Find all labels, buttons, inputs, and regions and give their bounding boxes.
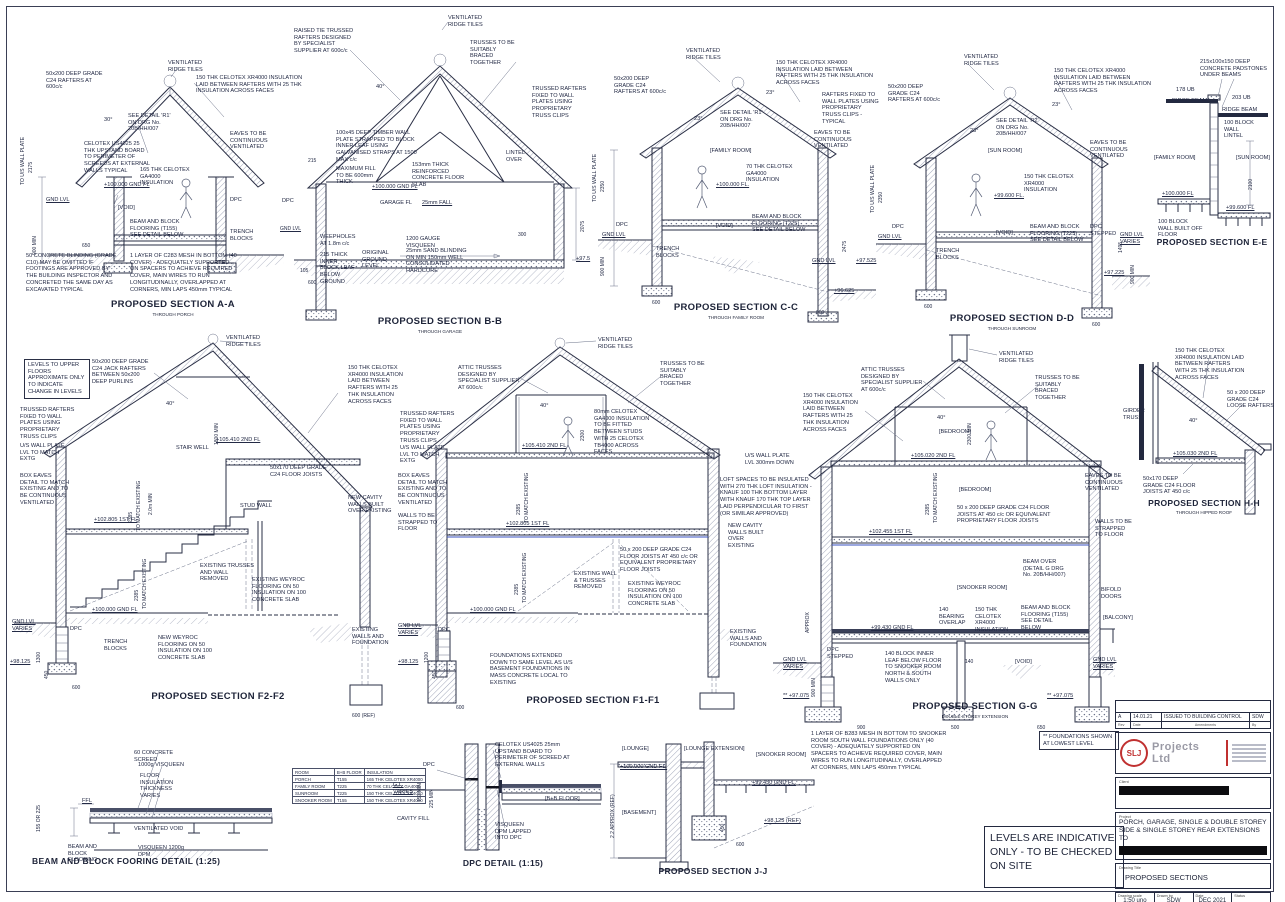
annotation-label: +99.600 FL xyxy=(1226,205,1254,212)
annotation-label: 2100 xyxy=(1248,179,1254,190)
amendments-header: Amendments xyxy=(1162,722,1250,728)
annotation-label: 100 BLOCK WALL xyxy=(1224,120,1264,133)
annotation-label: +100.000 GND FL xyxy=(92,607,138,614)
annotation-label: 70 THK CELOTEX GA4000 INSULATION xyxy=(746,164,800,184)
annotation-label: VENTILATED RIDGE TILES xyxy=(168,60,220,73)
annotation-label: 450 xyxy=(432,671,438,679)
table-cell: FAMILY ROOM xyxy=(293,783,335,790)
annotation-label: DPC xyxy=(70,626,82,633)
annotation-label: TRUSSED RAFTERS FIXED TO WALL PLATES USI… xyxy=(532,86,588,120)
annotation-label: +105.410 2ND FL xyxy=(522,443,566,450)
annotation-label: 600 xyxy=(72,685,80,691)
revision-header-row: Rev Date Amendments By xyxy=(1115,722,1271,729)
annotation-label: WALLS TO BE STRAPPED TO FLOOR xyxy=(398,513,440,533)
annotation-label: FOUNDATIONS EXTENDED DOWN TO SAME LEVEL … xyxy=(490,653,574,687)
annotation-label: 23° xyxy=(694,116,702,123)
annotation-label: ATTIC TRUSSES DESIGNED BY SPECIALIST SUP… xyxy=(861,367,925,394)
annotation-label: 600 xyxy=(652,300,660,306)
detail-beam-block: BEAM AND BLOCK FOORING DETAIL (1:25) 60 … xyxy=(28,738,300,878)
annotation-label: 225 MIN xyxy=(429,789,435,808)
annotation-label: 600 xyxy=(1092,322,1100,328)
annotation-label: TO MATCH EXISTING xyxy=(522,553,528,603)
annotation-label: EXISTING WALLS AND FOUNDATION xyxy=(352,627,394,647)
annotation-label: TRUSSES TO BE SUITABLY BRACED TOGETHER xyxy=(660,361,708,388)
annotation-label: 23° xyxy=(970,128,978,135)
table-row: SNOOKER ROOMT155150 THK CELOTEX XR4000 xyxy=(293,797,426,804)
annotation-label: DPC STEPPED xyxy=(1090,224,1118,237)
annotation-label: 25mm SAND BLINDING ON MIN 150mm WELL CON… xyxy=(406,248,474,275)
annotation-label: EXISTING TRUSSES AND WALL REMOVED xyxy=(200,563,258,583)
annotation-label: DPC xyxy=(230,197,242,204)
revision-amendment: ISSUED TO BUILDING CONTROL xyxy=(1162,713,1250,721)
annotation-label: 50 x 200 DEEP GRADE C24 LOOSE RAFTERS xyxy=(1227,390,1279,410)
annotation-label: GND LVL xyxy=(602,232,626,239)
annotation-label: LINTEL OVER xyxy=(506,150,532,163)
annotation-label: 30° xyxy=(104,117,112,124)
annotation-label: 215 THICK INNER BLOCK LEAF BELOW GROUND xyxy=(320,252,356,286)
annotation-label: +100.000 GND FL xyxy=(372,184,418,191)
table-cell: PORCH xyxy=(293,776,335,783)
annotation-label: [SUN ROOM] xyxy=(988,148,1022,155)
annotation-label: 650 xyxy=(82,243,90,249)
annotation-label: 50x200 DEEP GRADE C24 RAFTERS AT 600c/c xyxy=(46,71,108,91)
annotation-label: SEE DETAIL 'R2' ON DRG No. 20B/HH/007 xyxy=(996,118,1042,138)
annotation-label: 900 MIN xyxy=(600,257,606,276)
detail-dpc: DPC DETAIL (1:15) CELOTEX US4025 25mm UP… xyxy=(393,728,611,880)
section-j-j: PROPOSED SECTION J-J [LOUNGE][LOUNGE EXT… xyxy=(608,718,820,890)
annotation-label: 2385 xyxy=(516,504,522,515)
annotation-label: 600 xyxy=(924,304,932,310)
annotation-label: GIRDER TRUSS xyxy=(1123,408,1151,421)
table-header: INSULATION xyxy=(364,769,425,776)
annotation-label: [SNOOKER ROOM] xyxy=(756,752,806,759)
annotation-label: +96.625 xyxy=(834,288,854,295)
annotation-label: 40° xyxy=(937,415,945,422)
annotation-label: 2175 xyxy=(28,162,34,173)
company-address xyxy=(1232,744,1266,762)
annotation-label: [LOUNGE] xyxy=(622,746,649,753)
annotation-label: G.L. VARIES xyxy=(393,782,415,795)
annotation-label: [B+B FLOOR] xyxy=(545,796,580,803)
annotation-label: +98.125 xyxy=(398,659,418,666)
annotation-label: FFL xyxy=(82,798,92,805)
annotation-label: NEW CAVITY WALLS BUILT OVER EXISTING xyxy=(348,495,392,515)
annotation-label: +102.805 1ST FL xyxy=(94,517,137,524)
annotation-label: VISQUEEN 1200g DPM xyxy=(138,845,196,858)
client-redacted xyxy=(1119,786,1229,795)
annotation-label: 900 MIN xyxy=(811,678,817,697)
annotation-label: 40° xyxy=(540,403,548,410)
annotation-label: GND LVL xyxy=(46,197,70,204)
annotation-label: [SNOOKER ROOM] xyxy=(957,585,1007,592)
annotation-label: 600 xyxy=(456,705,464,711)
annotation-label: [BASEMENT] xyxy=(622,810,656,817)
annotation-label: 40° xyxy=(376,84,384,91)
annotation-label: SEE DETAIL 'R1' ON DRG No. 20B/HH/007 xyxy=(720,110,766,130)
annotation-label: DPC xyxy=(423,762,435,769)
annotation-label: ATTIC TRUSSES DESIGNED BY SPECIALIST SUP… xyxy=(458,365,520,392)
annotation-label: EAVES TO BE CONTINUOUS VENTILATED xyxy=(1090,140,1136,160)
annotation-label: [VOID] xyxy=(996,230,1013,237)
annotation-label: FLOOR INSULATION THICKNESS VARIES xyxy=(140,773,190,800)
annotation-label: 150 THK CELOTEX XR4000 INSULATION LAID B… xyxy=(776,60,880,87)
section-c-c: PROPOSED SECTION C-C THROUGH FAMILY ROOM… xyxy=(590,42,882,324)
annotation-label: ** +97.075 xyxy=(783,693,809,700)
annotation-label: +100.000 FL. xyxy=(716,182,749,189)
annotation-label: 2075 xyxy=(580,221,586,232)
logo-name: Projects Ltd xyxy=(1152,741,1222,765)
annotation-label: 150 THK CELOTEX XR4000 INSULATION xyxy=(975,607,1017,634)
annotation-label: 2475 xyxy=(842,241,848,252)
annotation-label: EAVES TO BE CONTINUOUS VENTILATED xyxy=(1085,473,1127,493)
annotation-label: +100.000 GND FL xyxy=(470,607,516,614)
annotation-label: 215x100x150 DEEP CONCRETE PADSTONES UNDE… xyxy=(1200,59,1274,79)
annotation-label: 2385 xyxy=(514,584,520,595)
annotation-label: 150 THK CELOTEX XR4000 INSULATION LAID B… xyxy=(196,75,308,95)
annotation-label: 1200 xyxy=(424,652,430,663)
annotation-label: DPC STEPPED xyxy=(827,647,853,660)
annotation-label: GND LVL VARIES xyxy=(1093,657,1119,670)
annotation-label: 155 OR 225 xyxy=(36,805,42,832)
annotation-label: 900 MIN xyxy=(1130,265,1136,284)
annotation-label: 50x200 DEEP GRADE C24 RAFTERS AT 600c/c xyxy=(888,84,944,104)
annotation-label: 1495 xyxy=(1118,242,1124,253)
project-address-redacted xyxy=(1119,846,1267,855)
detail-title: DPC DETAIL (1:15) xyxy=(423,858,583,868)
logo-circle-icon: SLJ xyxy=(1120,739,1148,767)
annotation-label: 500 xyxy=(951,725,959,731)
annotation-label: RAFTERS FIXED TO WALL PLATES USING PROPR… xyxy=(822,92,880,126)
annotation-label: EXISTING WEYROC FLOORING ON 50 INSULATIO… xyxy=(252,577,322,604)
annotation-label: 1 LAYER OF C283 MESH IN BOTTOM (40 COVER… xyxy=(130,253,238,293)
table-header: B+B FLOOR xyxy=(334,769,364,776)
annotation-label: TRENCH BLOCKS xyxy=(936,248,966,261)
annotation-label: BEAM AND BLOCK FLOORING (T225) SEE DETAI… xyxy=(1030,224,1086,244)
annotation-label: ** +97.075 xyxy=(1047,693,1073,700)
annotation-label: RAISED TIE TRUSSED RAFTERS DESIGNED BY S… xyxy=(294,28,356,55)
project-box: Project PORCH, GARAGE, SINGLE & DOUBLE S… xyxy=(1115,812,1271,860)
annotation-label: GARAGE FL xyxy=(380,200,412,207)
annotation-label: U/S WALL PLATE LVL 300mm DOWN xyxy=(745,453,795,466)
by-header: By xyxy=(1250,722,1270,728)
drawing-sheet: PROPOSED SECTION A-A THROUGH PORCH VENTI… xyxy=(0,0,1285,902)
annotation-label: GND LVL VARIES xyxy=(12,619,38,632)
annotation-label: GND LVL xyxy=(878,234,902,241)
annotation-label: 50 x 200 DEEP GRADE C24 FLOOR JOISTS AT … xyxy=(620,547,702,574)
date-header: Date xyxy=(1131,722,1162,728)
annotation-label: +100.000 GND FL. xyxy=(620,764,667,771)
revision-empty-row xyxy=(1115,700,1271,713)
annotation-label: 50x200 DEEP GRADE C24 RAFTERS AT 600c/c xyxy=(614,76,670,96)
annotation-label: DPC xyxy=(616,222,628,229)
annotation-label: 50 x 200 DEEP GRADE C24 FLOOR JOISTS AT … xyxy=(957,505,1065,525)
annotation-label: BIFOLD DOORS xyxy=(1101,587,1133,600)
annotation-label: +99.430 GND FL. xyxy=(752,780,796,787)
section-title: PROPOSED SECTION F1-F1 xyxy=(493,695,693,706)
annotation-label: LOFT SPACES TO BE INSULATED WITH 270 THK… xyxy=(720,477,814,517)
annotation-label: TO MATCH EXISTING xyxy=(142,559,148,609)
annotation-label: BOX EAVES DETAIL TO MATCH EXISTING AND T… xyxy=(398,473,450,507)
annotation-label: GND LVL xyxy=(280,226,301,232)
annotation-label: +97.225 xyxy=(1104,270,1124,277)
annotation-label: +97.5 xyxy=(576,256,590,263)
annotation-label: 600 (REF) xyxy=(352,713,375,719)
annotation-label: APPROX xyxy=(805,612,811,633)
annotation-label: DPC xyxy=(438,627,450,634)
annotation-label: 25mm FALL xyxy=(422,200,452,207)
annotation-label: TO U/S WALL PLATE xyxy=(870,165,876,213)
annotation-label: 50x200 DEEP GRADE C24 JACK RAFTERS BETWE… xyxy=(92,359,154,386)
annotation-label: 50x170 DEEP GRADE C24 FLOOR JOISTS xyxy=(270,465,328,478)
date-value: DEC 2021 xyxy=(1196,898,1230,902)
annotation-label: +102.805 1ST FL xyxy=(506,521,549,528)
annotation-label: +100.000 FL xyxy=(1162,191,1194,198)
annotation-label: VENTILATED RIDGE TILES xyxy=(999,351,1051,364)
annotation-label: 2385 xyxy=(925,504,931,515)
annotation-label: STUD WALL xyxy=(240,503,272,510)
annotation-label: VENTILATED RIDGE TILES xyxy=(964,54,1014,67)
annotation-label: SEE DETAIL 'R1' ON DRG No. 20B/HH/007 xyxy=(128,113,176,133)
annotation-label: 150 THK CELOTEX XR4000 INSULATION LAID B… xyxy=(1175,348,1245,382)
annotation-label: WALLS TO BE STRAPPED TO FLOOR xyxy=(1095,519,1133,539)
annotation-label: RIDGE BEAM xyxy=(1222,107,1257,114)
annotation-label: 50x170 DEEP GRADE C24 FLOOR JOISTS AT 45… xyxy=(1143,476,1199,496)
section-title: PROPOSED SECTION F2-F2 xyxy=(118,691,318,702)
annotation-label: GND LVL xyxy=(812,258,836,265)
annotation-label: BEAM AND BLOCK FLOORING (T155) SEE DETAI… xyxy=(1021,605,1071,632)
annotation-label: RIDGE BEAM xyxy=(1172,98,1207,105)
annotation-label: DPC xyxy=(282,198,294,205)
table-cell: T225 xyxy=(334,783,364,790)
company-logo: SLJ Projects Ltd xyxy=(1115,732,1271,774)
annotation-label: TRENCH BLOCKS xyxy=(230,229,260,242)
annotation-label: BEAM AND BLOCK FLOORING xyxy=(68,844,110,864)
section-g-g: PROPOSED SECTION G-G DOUBLE STOREY EXTEN… xyxy=(743,333,1117,783)
revision-letter: A xyxy=(1116,713,1131,721)
annotation-label: [LOUNGE EXTENSION] xyxy=(684,746,745,753)
annotation-label: 150 THK CELOTEX XR4000 INSULATION LAID B… xyxy=(803,393,865,433)
table-cell: SNOOKER ROOM xyxy=(293,797,335,804)
section-subtitle: THROUGH HIPPED ROOF xyxy=(1119,510,1285,515)
annotation-label: 2300 xyxy=(580,430,586,441)
table-cell: T155 xyxy=(334,776,364,783)
annotation-label: 150 THK CELOTEX XR4000 INSULATION LAID B… xyxy=(1054,68,1154,95)
annotation-label: U/S WALL PLATE LVL TO MATCH EXTG xyxy=(20,443,72,463)
drawn-value: SDW xyxy=(1157,898,1191,902)
revision-by: SDW xyxy=(1250,713,1270,721)
annotation-label: 2350 xyxy=(600,181,606,192)
annotation-label: GND LVL VARIES xyxy=(783,657,809,670)
section-title: PROPOSED SECTION A-A xyxy=(73,299,273,310)
annotation-label: 600 xyxy=(308,280,316,286)
section-title: PROPOSED SECTION D-D xyxy=(912,313,1112,324)
annotation-label: NEW WEYROC FLOORING ON 50 INSULATION ON … xyxy=(158,635,222,662)
section-h-h: PROPOSED SECTION H-H THROUGH HIPPED ROOF… xyxy=(1123,338,1285,538)
annotation-label: 1 LAYER OF B283 MESH IN BOTTOM TO SNOOKE… xyxy=(811,731,947,771)
annotation-label: +105.410 2ND FL xyxy=(216,437,260,444)
annotation-label: EXISTING WEYROC FLOORING ON 50 INSULATIO… xyxy=(628,581,700,608)
section-subtitle: THROUGH FAMILY ROOM xyxy=(636,315,836,320)
annotation-label: TO MATCH EXISTING xyxy=(524,473,530,523)
annotation-label: TRUSSED RAFTERS FIXED TO WALL PLATES USI… xyxy=(20,407,76,441)
annotation-label: EAVES TO BE CONTINUOUS VENTILATED xyxy=(230,131,278,151)
annotation-label: LINTEL xyxy=(1224,133,1243,140)
annotation-label: +98.125 xyxy=(10,659,30,666)
annotation-label: WEEPHOLES AT 1.8m c/c xyxy=(320,234,358,247)
section-title: PROPOSED SECTION C-C xyxy=(636,302,836,313)
annotation-label: VENTILATED RIDGE TILES xyxy=(598,337,650,350)
annotation-label: 300 xyxy=(518,232,526,238)
section-d-d: PROPOSED SECTION D-D THROUGH SUNROOM VEN… xyxy=(868,48,1156,330)
table-cell: SUNROOM xyxy=(293,790,335,797)
annotation-label: VENTILATED RIDGE TILES xyxy=(448,15,500,28)
annotation-label: 140 xyxy=(965,659,973,665)
annotation-label: VENTILATED RIDGE TILES xyxy=(686,48,736,61)
annotation-label: 600 xyxy=(816,310,824,316)
annotation-label: 150 MIN xyxy=(417,783,423,802)
annotation-label: 150 THK CELOTEX XR4000 INSULATION xyxy=(1024,174,1078,194)
annotation-label: BEAM OVER (DETAIL G DRG No. 20B/HH/007) xyxy=(1023,559,1073,579)
annotation-label: TO MATCH EXISTING xyxy=(933,473,939,523)
annotation-label: 600 xyxy=(736,842,744,848)
annotation-label: +100.000 GND FL xyxy=(104,182,150,189)
annotation-label: TO U/S WALL PLATE xyxy=(20,137,26,185)
annotation-label: VENTILATED RIDGE TILES xyxy=(226,335,278,348)
annotation-label: +97.525 xyxy=(856,258,876,265)
annotation-label: LEVELS TO UPPER FLOORS APPROXIMATE ONLY … xyxy=(24,359,90,399)
rev-header: Rev xyxy=(1116,722,1131,728)
annotation-label: [SUN ROOM] xyxy=(1236,155,1270,162)
section-subtitle: THROUGH SUNROOM xyxy=(912,326,1112,331)
annotation-label: 2350 xyxy=(878,192,884,203)
annotation-label: U/S WALL PLATE LVL TO MATCH EXTG xyxy=(400,445,450,465)
annotation-label: 150 THK CELOTEX XR4000 INSULATION LAID B… xyxy=(348,365,404,405)
annotation-label: CELOTEX US4025 25mm UPSTAND BOARD TO PER… xyxy=(495,742,575,769)
annotation-label: VISQUEEN DPM LAPPED INTO DPC xyxy=(495,822,537,842)
annotation-label: GND LVL VARIES xyxy=(398,623,424,636)
annotation-label: 1000g VISQUEEN xyxy=(138,762,184,769)
section-e-e: PROPOSED SECTION E-E 215x100x150 DEEP CO… xyxy=(1150,55,1278,255)
status-label: Status xyxy=(1234,894,1268,898)
annotation-label: 2.0m MIN xyxy=(148,493,154,515)
annotation-label: 450 xyxy=(44,671,50,679)
annotation-label: 140 BEARING OVERLAP xyxy=(939,607,971,627)
annotation-label: 105 xyxy=(300,268,308,274)
revision-date: 14.01.21 xyxy=(1131,713,1162,721)
table-cell: T155 xyxy=(334,797,364,804)
annotation-label: 40° xyxy=(166,401,174,408)
annotation-label: 178 UB xyxy=(1176,87,1195,94)
annotation-label: 450 xyxy=(720,824,726,832)
annotation-label: +98.125 (REF) xyxy=(764,818,801,825)
annotation-label: BEAM AND BLOCK FLOORING (T225) SEE DETAI… xyxy=(752,214,808,234)
table-cell: T225 xyxy=(334,790,364,797)
section-title: PROPOSED SECTION G-G xyxy=(875,701,1075,712)
annotation-label: +102.455 1ST FL xyxy=(869,529,912,536)
annotation-label: 100x45 DEEP TIMBER WALL PLATE STRAPPED T… xyxy=(336,130,418,164)
annotation-label: TO U/S WALL PLATE xyxy=(592,154,598,202)
section-title: PROPOSED SECTION H-H xyxy=(1119,498,1285,508)
annotation-label: +99.600 FL. xyxy=(994,193,1024,200)
annotation-label: 50 CONCRETE BLINDING (GRADE C10) MAY BE … xyxy=(26,253,120,293)
revision-row: A 14.01.21 ISSUED TO BUILDING CONTROL SD… xyxy=(1115,713,1271,722)
annotation-label: 40° xyxy=(1189,418,1197,425)
annotation-label: MAXIMUM FILL TO BE 600mm THICK xyxy=(336,166,376,186)
annotation-label: EXISTING WALLS AND FOUNDATION xyxy=(730,629,772,649)
logo-divider xyxy=(1226,740,1229,766)
annotation-label: 23° xyxy=(766,90,774,97)
annotation-label: 2.2 APPROX (REF) xyxy=(610,794,616,838)
section-title: PROPOSED SECTION E-E xyxy=(1130,237,1285,247)
annotation-label: 2385 xyxy=(134,590,140,601)
levels-note: LEVELS ARE INDICATIVE ONLY - TO BE CHECK… xyxy=(984,826,1124,888)
annotation-label: [VOID] xyxy=(716,223,733,230)
annotation-label: 23° xyxy=(1052,102,1060,109)
annotation-label: [VOID] xyxy=(1015,659,1032,666)
section-f2-f2: PROPOSED SECTION F2-F2 LEVELS TO UPPER F… xyxy=(8,333,402,711)
annotation-label: [VOID] xyxy=(118,205,135,212)
drawing-meta-row: Drawing scale1:50 uno Drawn bySDW DateDE… xyxy=(1115,892,1271,902)
annotation-label: [BEDROOM] xyxy=(959,487,991,494)
annotation-label: [FAMILY ROOM] xyxy=(1154,155,1195,162)
drawing-title-box: Drawing Title PROPOSED SECTIONS xyxy=(1115,863,1271,889)
table-header: ROOM xyxy=(293,769,335,776)
annotation-label: DPC xyxy=(892,224,904,231)
annotation-label: 153mm THICK REINFORCED CONCRETE FLOOR SL… xyxy=(412,162,476,189)
section-b-b: PROPOSED SECTION B-B THROUGH GARAGE VENT… xyxy=(280,10,590,332)
section-title: PROPOSED SECTION J-J xyxy=(618,866,808,876)
annotation-label: 2300 MIN xyxy=(967,423,973,445)
annotation-label: TRENCH BLOCKS xyxy=(656,246,686,259)
annotation-label: 100 BLOCK WALL BUILT OFF FLOOR xyxy=(1158,219,1204,239)
annotation-label: +105.030 2ND FL xyxy=(1173,451,1217,458)
annotation-label: ORIGINAL GROUND LEVEL xyxy=(362,250,398,270)
annotation-label: 140 BLOCK INNER LEAF BELOW FLOOR TO SNOO… xyxy=(885,651,949,685)
section-title: PROPOSED SECTION B-B xyxy=(340,316,540,327)
section-subtitle: THROUGH PORCH xyxy=(73,312,273,317)
annotation-label: BEAM AND BLOCK FLOORING (T155) SEE DETAI… xyxy=(130,219,188,239)
annotation-label: TRUSSES TO BE SUITABLY BRACED TOGETHER xyxy=(1035,375,1083,402)
scale-value: 1:50 uno xyxy=(1118,898,1152,902)
annotation-label: 80mm CELOTEX GA4000 INSULATION TO BE FIT… xyxy=(594,409,658,456)
section-subtitle: DOUBLE STOREY EXTENSION xyxy=(875,714,1075,719)
annotation-label: BOX EAVES DETAIL TO MATCH EXISTING AND T… xyxy=(20,473,72,507)
annotation-label: EXISTING WALL & TRUSSES REMOVED xyxy=(574,571,620,591)
annotation-label: EAVES TO BE CONTINUOUS VENTILATED xyxy=(814,130,860,150)
annotation-label: [BALCONY] xyxy=(1103,615,1133,622)
annotation-label: +105.020 2ND FL xyxy=(911,453,955,460)
annotation-label: TRENCH BLOCKS xyxy=(104,639,134,652)
annotation-label: NEW CAVITY WALLS BUILT OVER EXISTING xyxy=(728,523,770,550)
title-block: A 14.01.21 ISSUED TO BUILDING CONTROL SD… xyxy=(1115,700,1271,890)
annotation-label: TRUSSES TO BE SUITABLY BRACED TOGETHER xyxy=(470,40,516,67)
annotation-label: +99.430 GND FL xyxy=(871,625,913,632)
client-box: Client xyxy=(1115,777,1271,809)
annotation-label: VENTILATED VOID xyxy=(134,826,183,833)
section-f1-f1: PROPOSED SECTION F1-F1 VENTILATED RIDGE … xyxy=(398,333,742,711)
client-label: Client xyxy=(1119,780,1267,784)
annotation-label: TRUSSED RAFTERS FIXED TO WALL PLATES USI… xyxy=(400,411,456,445)
annotation-label: 203 UB xyxy=(1232,95,1251,102)
annotation-label: [FAMILY ROOM] xyxy=(710,148,751,155)
annotation-label: 215 xyxy=(308,158,316,164)
annotation-label: ** FOUNDATIONS SHOWN AT LOWEST LEVEL xyxy=(1039,731,1119,750)
annotation-label: STAIR WELL xyxy=(176,445,209,452)
section-subtitle: THROUGH GARAGE xyxy=(340,329,540,334)
annotation-label: 1300 xyxy=(36,652,42,663)
annotation-label: CAVITY FILL xyxy=(397,816,429,823)
drawing-title: PROPOSED SECTIONS xyxy=(1119,870,1267,884)
